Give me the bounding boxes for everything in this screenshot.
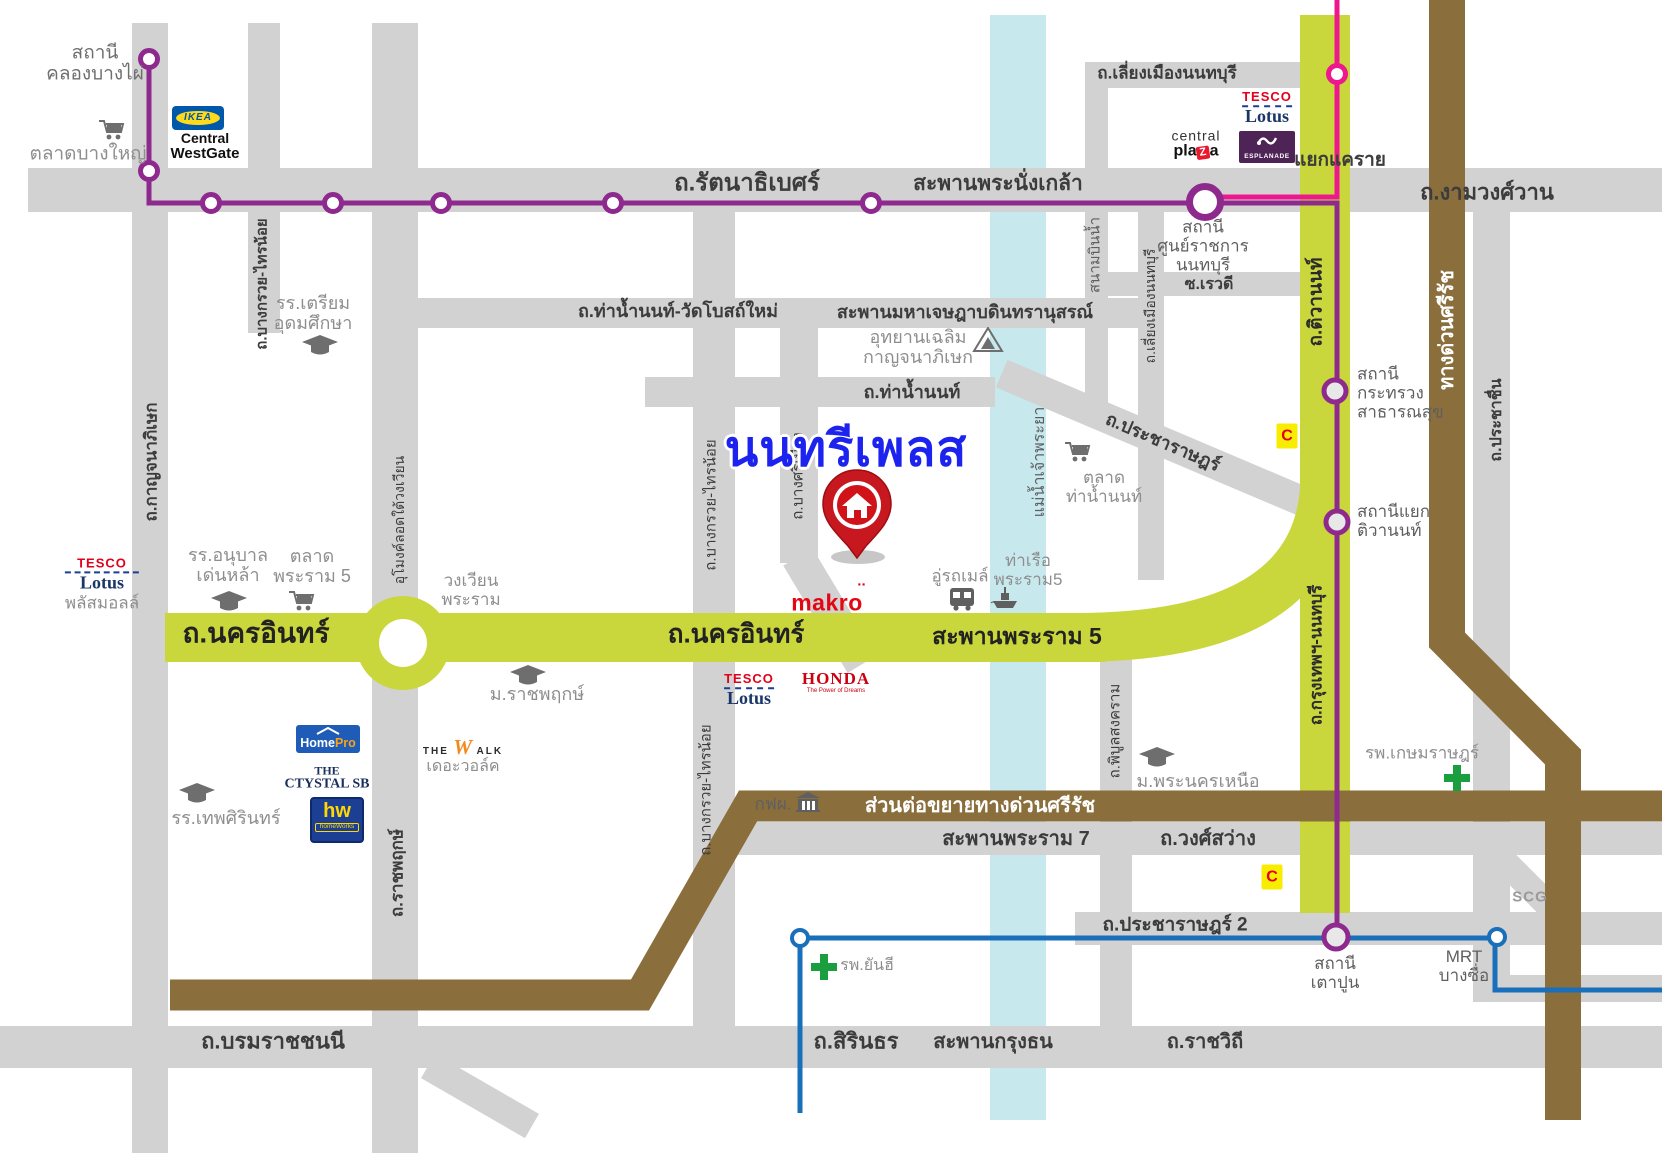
- rd-umong-rotary: อุโมงค์ลอดใต้วงเวียน: [392, 456, 408, 584]
- mrt-station-pink: [1326, 63, 1348, 85]
- rd-phra-nang-klao-bridge: สะพานพระนั่งเกล้า: [913, 172, 1083, 196]
- rd-krungthon-bridge: สะพานกรุงธน: [933, 1031, 1053, 1053]
- tesco-text: TESCO: [1242, 90, 1292, 107]
- thewalk-w: W: [453, 735, 472, 759]
- mrt-station-krasuang: [1322, 378, 1349, 405]
- the-walk-logo: THE W ALK เดอะวอล์ค: [423, 736, 503, 776]
- honda-tagline: The Power of Dreams: [802, 688, 870, 694]
- mrt-station-purple: [602, 192, 624, 214]
- rd-borommaratchachonnani: ถ.บรมราชชนนี: [201, 1030, 345, 1055]
- mrt-interchange-khae-rai: [1186, 183, 1224, 221]
- graduation-cap-icon: [1138, 745, 1176, 769]
- central-plaza-z: Z: [1196, 145, 1211, 160]
- rd-phibunsongkhram: ถ.พิบูลสงคราม: [1108, 684, 1125, 779]
- location-pin-icon: [818, 468, 896, 564]
- rd-rama5-bridge: สะพานพระราม 5: [932, 624, 1102, 650]
- ikea-logo: IKEA: [172, 106, 224, 130]
- rd-bang-kruai-sai-noi-s: ถ.บางกรวย-ไทรน้อย: [699, 724, 716, 855]
- mrt-station-purple: [322, 192, 344, 214]
- rd-yaek-khae-rai: แยกแคราย: [1294, 149, 1386, 170]
- st-mrt-bangsue: MRT บางซื่อ: [1439, 947, 1489, 985]
- st-sun-ratchakan: สถานี ศูนย์ราชการ นนทบุรี: [1157, 217, 1249, 274]
- lotus-text: Lotus: [724, 689, 774, 708]
- lm-egat: กฟผ.: [754, 794, 791, 813]
- homeworks-hw: hw: [312, 799, 362, 823]
- homeworks-sub: homeWorks: [315, 823, 359, 832]
- cart-icon: [287, 589, 315, 613]
- lm-triam-udom: รร.เตรียม อุดมศึกษา: [274, 293, 353, 333]
- rd-rattanathibet: ถ.รัตนาธิเบศร์: [674, 171, 820, 198]
- rd-sanambinnam: สนามบินน้ำ: [1088, 217, 1105, 293]
- central-plaza-pla: pla: [1173, 142, 1196, 159]
- tesco-lotus-logo: TESCO Lotus: [1242, 90, 1292, 126]
- lm-talat-bang-yai: ตลาดบางใหญ่: [30, 143, 147, 164]
- thewalk-the: THE: [423, 746, 449, 757]
- rd-soi-rewadee: ซ.เรวดี: [1185, 276, 1234, 294]
- rd-liang-mueang-top: ถ.เลี่ยงเมืองนนทบุรี: [1097, 63, 1236, 82]
- lm-talat-tha-nam-non: ตลาด ท่าน้ำนนท์: [1066, 468, 1142, 506]
- lotus-text: Lotus: [65, 573, 139, 592]
- crystal-line1: THE: [285, 764, 370, 777]
- map-title: นนทรีเพลส: [725, 423, 968, 478]
- rd-liang-mueang-s: ถ.เลี่ยงเมืองนนทบุรี: [1143, 249, 1159, 364]
- hospital-cross-icon: [811, 954, 837, 980]
- rd-tha-nam-non: ถ.ท่าน้ำนนท์: [864, 382, 961, 402]
- homeworks-logo: hw homeWorks: [310, 797, 364, 843]
- mrt-station-purple: [860, 192, 882, 214]
- mrt-station-taopoon: [1322, 923, 1351, 952]
- rd-si-rat-expwy: ทางด่วนศรีรัช: [1436, 270, 1458, 390]
- map-canvas: IKEA Central WestGate TESCO Lotus centra…: [0, 0, 1662, 1153]
- bus-icon: [948, 586, 976, 612]
- lm-uthayan-chalerm: อุทยานเฉลิม กาญจนาภิเษก: [863, 327, 973, 367]
- lm-kmutnb: ม.พระนครเหนือ: [1136, 771, 1259, 791]
- central-plaza-a: a: [1210, 142, 1219, 159]
- cart-icon: [97, 118, 125, 142]
- lm-rama5-pier: ท่าเรือ พระราม5: [994, 551, 1063, 589]
- mrt-station-purple: [200, 192, 222, 214]
- government-building-icon: [795, 791, 821, 813]
- makro-text: makro: [791, 590, 863, 616]
- lm-talat-rama5: ตลาด พระราม 5: [273, 546, 351, 586]
- graduation-cap-icon: [210, 589, 248, 613]
- mrt-station-purple: [430, 192, 452, 214]
- rd-prachachuen: ถ.ประชาชื่น: [1488, 378, 1506, 461]
- central-westgate-line2: WestGate: [171, 145, 240, 161]
- st-khlong-bang-phai: สถานี คลองบางไผ่: [46, 43, 144, 86]
- the-crystal-logo: THE CTYSTAL SB: [285, 764, 370, 791]
- tesco-text: TESCO: [65, 556, 139, 573]
- rd-ratchaphruek: ถ.ราชพฤกษ์: [387, 829, 406, 917]
- rd-bang-kruai-sai-noi-n: ถ.บางกรวย-ไทรน้อย: [255, 218, 272, 349]
- makro-logo: makro ¨: [791, 591, 863, 616]
- esplanade-text: ESPLANADE: [1239, 154, 1295, 161]
- makro-accent: ¨: [858, 582, 865, 603]
- scg-text: SCG: [1512, 890, 1548, 907]
- bigc-c: C: [1281, 428, 1293, 445]
- rd-tiwanon: ถ.ติวานนท์: [1305, 258, 1326, 347]
- rd-kanchanaphisek: ถ.กาญจนาภิเษก: [141, 403, 160, 522]
- lm-wongwian-rama: วงเวียน พระราม: [441, 571, 500, 609]
- lm-debsirin-school: รร.เทพศิรินทร์: [171, 808, 280, 828]
- graduation-cap-icon: [301, 333, 339, 357]
- central-westgate-logo: Central WestGate: [171, 131, 240, 161]
- central-westgate-line1: Central: [171, 131, 240, 146]
- homepro-home: Home: [300, 736, 335, 750]
- scg-label: SCG: [1512, 889, 1548, 906]
- rd-krungthep-nonthaburi: ถ.กรุงเทพฯ-นนทบุรี: [1306, 585, 1325, 726]
- lm-ratchaphruek-uni: ม.ราชพฤกษ์: [490, 684, 584, 704]
- rd-bang-kruai-sai-noi-m: ถ.บางกรวย-ไทรน้อย: [704, 439, 721, 570]
- ikea-logo-text: IKEA: [184, 113, 212, 124]
- hospital-cross-icon: [1444, 765, 1470, 791]
- lotus-text: Lotus: [1242, 107, 1292, 126]
- lm-kasemrad-hospital: รพ.เกษมราษฎร์: [1365, 743, 1479, 762]
- bigc-c: C: [1266, 869, 1278, 886]
- homepro-logo: HomePro: [296, 725, 360, 753]
- mrt-station-blue-west: [790, 928, 810, 948]
- plus-mall-text: พลัสมอลล์: [65, 594, 139, 612]
- rd-pracharat2: ถ.ประชาราษฎร์ 2: [1102, 914, 1247, 935]
- honda-text: HONDA: [802, 670, 870, 688]
- lm-denla-school: รร.อนุบาล เด่นหล้า: [188, 545, 268, 585]
- river-chao-phraya: แม่น้ำเจ้าพระยา: [1031, 407, 1049, 518]
- rd-ratchawithi: ถ.ราชวิถี: [1167, 1031, 1244, 1053]
- honda-logo: HONDA The Power of Dreams: [802, 670, 870, 694]
- lm-yanhee-hospital: รพ.ยันฮี: [840, 957, 894, 975]
- rd-maha-chetsada-bridge: สะพานมหาเจษฎาบดินทรานุสรณ์: [837, 302, 1093, 322]
- tesco-lotus-plus-mall-logo: TESCO Lotus พลัสมอลล์: [65, 556, 139, 611]
- rd-rama7-bridge: สะพานพระราม 7: [942, 828, 1090, 850]
- rd-ngamwongwan: ถ.งามวงศ์วาน: [1420, 181, 1554, 206]
- st-yaek-tiwanon: สถานีแยก ติวานนท์: [1357, 502, 1430, 540]
- temple-icon: [972, 327, 1004, 353]
- bigc-logo: C: [1277, 424, 1298, 449]
- rd-nakhon-in-left: ถ.นครอินทร์: [182, 617, 329, 648]
- homepro-pro: Pro: [335, 736, 356, 750]
- rd-nakhon-in-mid: ถ.นครอินทร์: [668, 619, 805, 648]
- st-taopoon: สถานี เตาปูน: [1311, 954, 1360, 992]
- central-plaza-logo: central plaZa: [1171, 128, 1220, 159]
- rd-si-rat-extension: ส่วนต่อขยายทางด่วนศรีรัช: [865, 795, 1095, 817]
- rd-tha-nam-non-wat-bot-mai: ถ.ท่าน้ำนนท์-วัดโบสถ์ใหม่: [578, 301, 778, 321]
- mrt-station-yaek-tiwanon: [1324, 509, 1351, 536]
- lm-bus-depot: อู่รถเมล์: [931, 566, 988, 585]
- thewalk-alk: ALK: [477, 746, 504, 757]
- central-plaza-line1: central: [1171, 128, 1220, 143]
- rd-wong-sawang: ถ.วงศ์สว่าง: [1160, 828, 1256, 850]
- tesco-text: TESCO: [724, 672, 774, 689]
- esplanade-logo: ESPLANADE: [1239, 131, 1295, 163]
- tesco-lotus-mid-logo: TESCO Lotus: [724, 672, 774, 708]
- cart-icon: [1063, 440, 1091, 464]
- rd-sirindhorn: ถ.สิรินธร: [814, 1030, 899, 1055]
- graduation-cap-icon: [178, 781, 216, 805]
- thewalk-thai: เดอะวอล์ค: [423, 759, 503, 776]
- mrt-blue-line: [800, 938, 1662, 1113]
- st-krasuang-satharanasuk: สถานี กระทรวง สาธารณสุข: [1357, 364, 1444, 421]
- mrt-station-bangsue: [1487, 927, 1507, 947]
- bigc-logo: C: [1262, 865, 1283, 890]
- crystal-line2: CTYSTAL SB: [285, 777, 370, 792]
